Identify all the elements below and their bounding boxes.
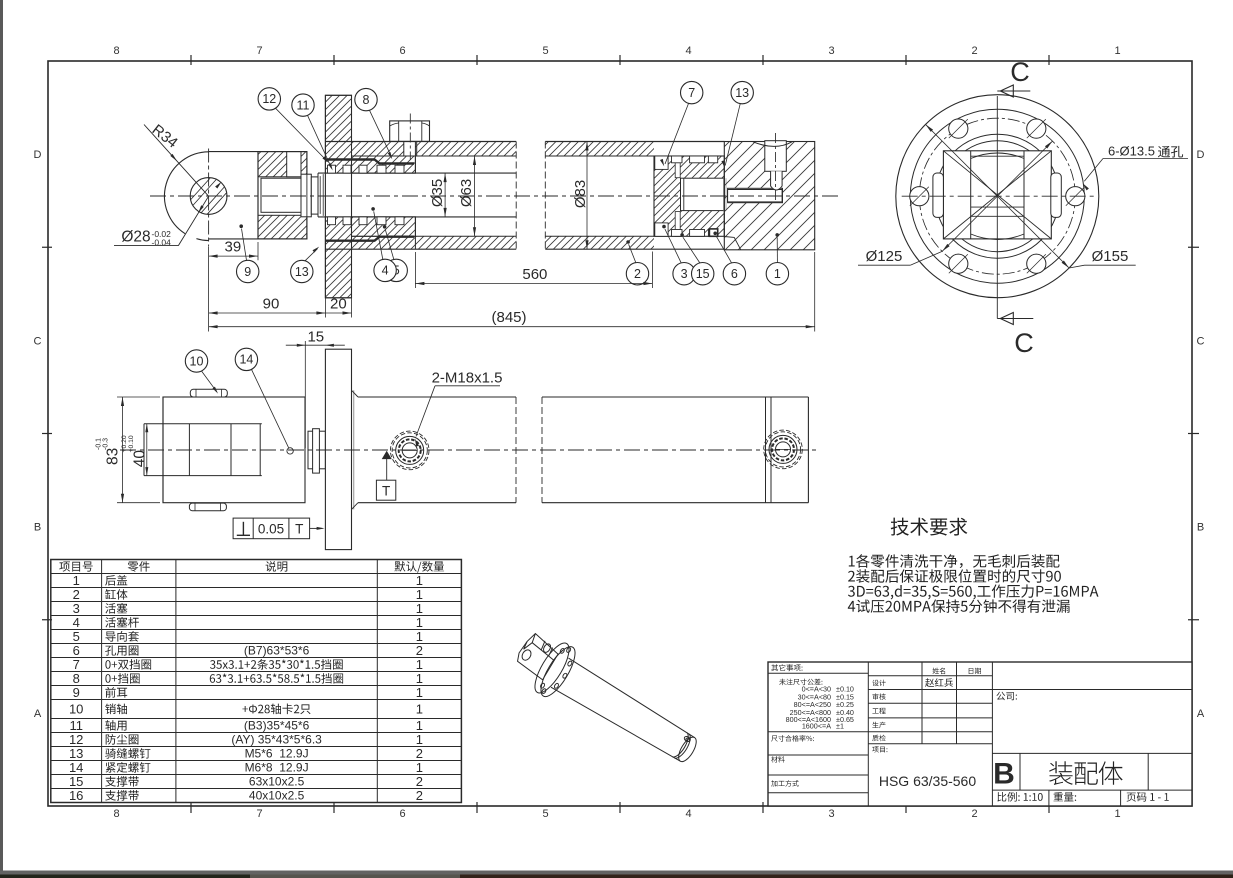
svg-text:5: 5 — [73, 629, 80, 644]
svg-text:-0.1: -0.1 — [96, 438, 103, 450]
svg-text:1: 1 — [416, 615, 423, 630]
svg-text:D: D — [34, 149, 42, 161]
svg-text:3: 3 — [73, 601, 80, 616]
svg-text:Ø63: Ø63 — [458, 179, 475, 207]
svg-text:M5*6 12.9J: M5*6 12.9J — [245, 747, 309, 761]
svg-text:12: 12 — [69, 732, 83, 747]
svg-text:8: 8 — [113, 45, 119, 57]
svg-text:T: T — [295, 521, 303, 536]
svg-text:Ø35: Ø35 — [429, 179, 446, 207]
svg-text:(AY) 35*43*5*6.3: (AY) 35*43*5*6.3 — [231, 733, 322, 747]
svg-text:90: 90 — [263, 295, 280, 312]
svg-text:2: 2 — [416, 788, 423, 803]
svg-text:B: B — [34, 522, 41, 534]
svg-text:7: 7 — [256, 45, 262, 57]
svg-text:+0.20: +0.20 — [121, 435, 128, 452]
svg-text:-0.3: -0.3 — [103, 438, 110, 450]
svg-text:16: 16 — [69, 788, 83, 803]
svg-text:10: 10 — [190, 354, 204, 368]
svg-text:9: 9 — [73, 685, 80, 700]
svg-text:63x10x2.5: 63x10x2.5 — [249, 775, 305, 789]
svg-text:C: C — [1010, 57, 1030, 87]
svg-text:2: 2 — [416, 774, 423, 789]
svg-text:8: 8 — [113, 808, 119, 820]
svg-text:1: 1 — [416, 760, 423, 775]
svg-text:M6*8 12.9J: M6*8 12.9J — [245, 761, 309, 775]
svg-text:1: 1 — [416, 629, 423, 644]
svg-text:Ø28: Ø28 — [121, 229, 150, 246]
svg-text:7: 7 — [73, 657, 80, 672]
svg-text:+0.10: +0.10 — [128, 435, 135, 452]
svg-text:40x10x2.5: 40x10x2.5 — [249, 789, 305, 803]
svg-text:39: 39 — [225, 239, 242, 256]
svg-text:1: 1 — [416, 573, 423, 588]
svg-text:3: 3 — [828, 808, 834, 820]
svg-text:15: 15 — [696, 267, 710, 281]
svg-text:2: 2 — [971, 808, 977, 820]
svg-text:B: B — [1197, 522, 1204, 534]
svg-text:1: 1 — [416, 732, 423, 747]
svg-text:4: 4 — [685, 808, 691, 820]
svg-text:12: 12 — [262, 92, 276, 106]
svg-text:2: 2 — [416, 746, 423, 761]
svg-text:2-M18x1.5: 2-M18x1.5 — [432, 370, 503, 387]
svg-text:1: 1 — [416, 657, 423, 672]
svg-text:A: A — [34, 708, 42, 720]
svg-text:13: 13 — [735, 86, 749, 100]
svg-text:±1: ±1 — [836, 722, 844, 731]
svg-text:(B3)35*45*6: (B3)35*45*6 — [244, 719, 310, 733]
svg-text:1: 1 — [416, 718, 423, 733]
svg-text:1: 1 — [1114, 45, 1120, 57]
svg-text:4: 4 — [73, 615, 80, 630]
svg-text:1: 1 — [774, 267, 781, 281]
svg-text:1: 1 — [416, 671, 423, 686]
svg-text:1600<=A: 1600<=A — [802, 722, 831, 731]
svg-text:6: 6 — [399, 808, 405, 820]
svg-text:5: 5 — [542, 45, 548, 57]
svg-text:4: 4 — [685, 45, 691, 57]
svg-text:14: 14 — [239, 353, 253, 367]
svg-text:6: 6 — [731, 267, 738, 281]
svg-text:A: A — [1197, 708, 1205, 720]
svg-text:HSG 63/35-560: HSG 63/35-560 — [879, 773, 976, 789]
svg-text:2: 2 — [73, 587, 80, 602]
svg-text:1: 1 — [416, 601, 423, 616]
svg-text:C: C — [1197, 335, 1205, 347]
svg-text:8: 8 — [363, 93, 370, 107]
svg-text:11: 11 — [297, 98, 310, 112]
svg-text:14: 14 — [69, 760, 83, 775]
svg-text:Ø125: Ø125 — [866, 248, 903, 265]
svg-text:8: 8 — [73, 671, 80, 686]
svg-text:2: 2 — [634, 267, 641, 281]
svg-text:3: 3 — [828, 45, 834, 57]
svg-text:(845): (845) — [491, 309, 526, 326]
svg-text:13: 13 — [69, 746, 83, 761]
svg-text:(B7)63*53*6: (B7)63*53*6 — [244, 644, 310, 658]
svg-text:C: C — [1014, 328, 1034, 358]
svg-text:1: 1 — [416, 685, 423, 700]
svg-text:5: 5 — [542, 808, 548, 820]
svg-text:Ø155: Ø155 — [1092, 248, 1129, 265]
svg-text:13: 13 — [295, 265, 309, 279]
svg-text:560: 560 — [522, 266, 547, 283]
svg-text:7: 7 — [256, 808, 262, 820]
svg-text:1: 1 — [416, 702, 423, 717]
svg-text:6: 6 — [73, 643, 80, 658]
svg-text:1: 1 — [1114, 808, 1120, 820]
svg-text:3: 3 — [681, 267, 688, 281]
svg-text:Ø83: Ø83 — [572, 180, 589, 208]
svg-text:2: 2 — [971, 45, 977, 57]
svg-text:0.05: 0.05 — [258, 521, 284, 536]
svg-text:D: D — [1197, 149, 1205, 161]
svg-text:B: B — [993, 758, 1015, 791]
svg-text:6-Ø13.5: 6-Ø13.5 — [1108, 144, 1155, 159]
svg-text:10: 10 — [69, 702, 83, 717]
svg-text:15: 15 — [69, 774, 83, 789]
svg-text:20: 20 — [330, 295, 347, 312]
svg-text:15: 15 — [307, 329, 324, 346]
svg-text:C: C — [34, 335, 42, 347]
svg-text:1: 1 — [73, 573, 80, 588]
svg-text:1: 1 — [416, 587, 423, 602]
svg-text:6: 6 — [399, 45, 405, 57]
svg-text:T: T — [382, 483, 390, 498]
svg-text:2: 2 — [416, 643, 423, 658]
svg-text:9: 9 — [244, 265, 251, 279]
svg-text:11: 11 — [69, 718, 83, 733]
svg-text:7: 7 — [688, 86, 695, 100]
svg-text:-0.04: -0.04 — [152, 237, 172, 247]
svg-text:4: 4 — [382, 264, 389, 278]
